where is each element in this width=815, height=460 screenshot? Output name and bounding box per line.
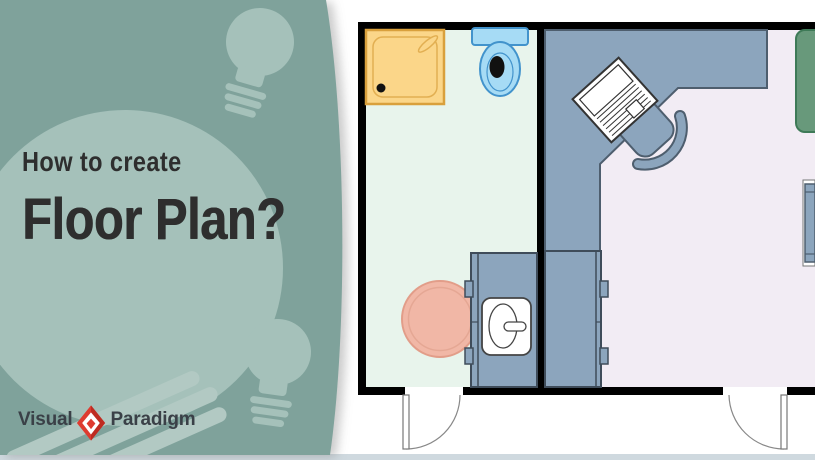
- visual-paradigm-logo: Visual Paradigm: [18, 404, 195, 436]
- sofa-icon: [796, 30, 815, 132]
- bathroom-door-icon: [403, 395, 460, 449]
- banner: How to create Floor Plan? Visual Paradig…: [0, 0, 815, 460]
- sink-cabinet-icon: [465, 253, 537, 387]
- wall-divider: [537, 30, 545, 395]
- wall-bottom-right: [787, 387, 815, 395]
- page-title: Floor Plan?: [22, 186, 285, 253]
- wardrobe-icon: [545, 251, 608, 387]
- shower-tray-icon: [366, 30, 444, 104]
- wall-bottom-left: [358, 387, 405, 395]
- sink-icon: [482, 298, 531, 355]
- kicker-text: How to create: [22, 146, 285, 178]
- office-door-icon: [729, 395, 787, 449]
- visual-paradigm-diamond-icon: [76, 404, 106, 442]
- wall-bottom-middle: [463, 387, 723, 395]
- window-icon: [803, 180, 815, 266]
- brand-word-visual: Visual: [18, 409, 72, 431]
- panel-text-block: How to create Floor Plan?: [22, 146, 336, 253]
- brand-word-paradigm: Paradigm: [110, 409, 195, 431]
